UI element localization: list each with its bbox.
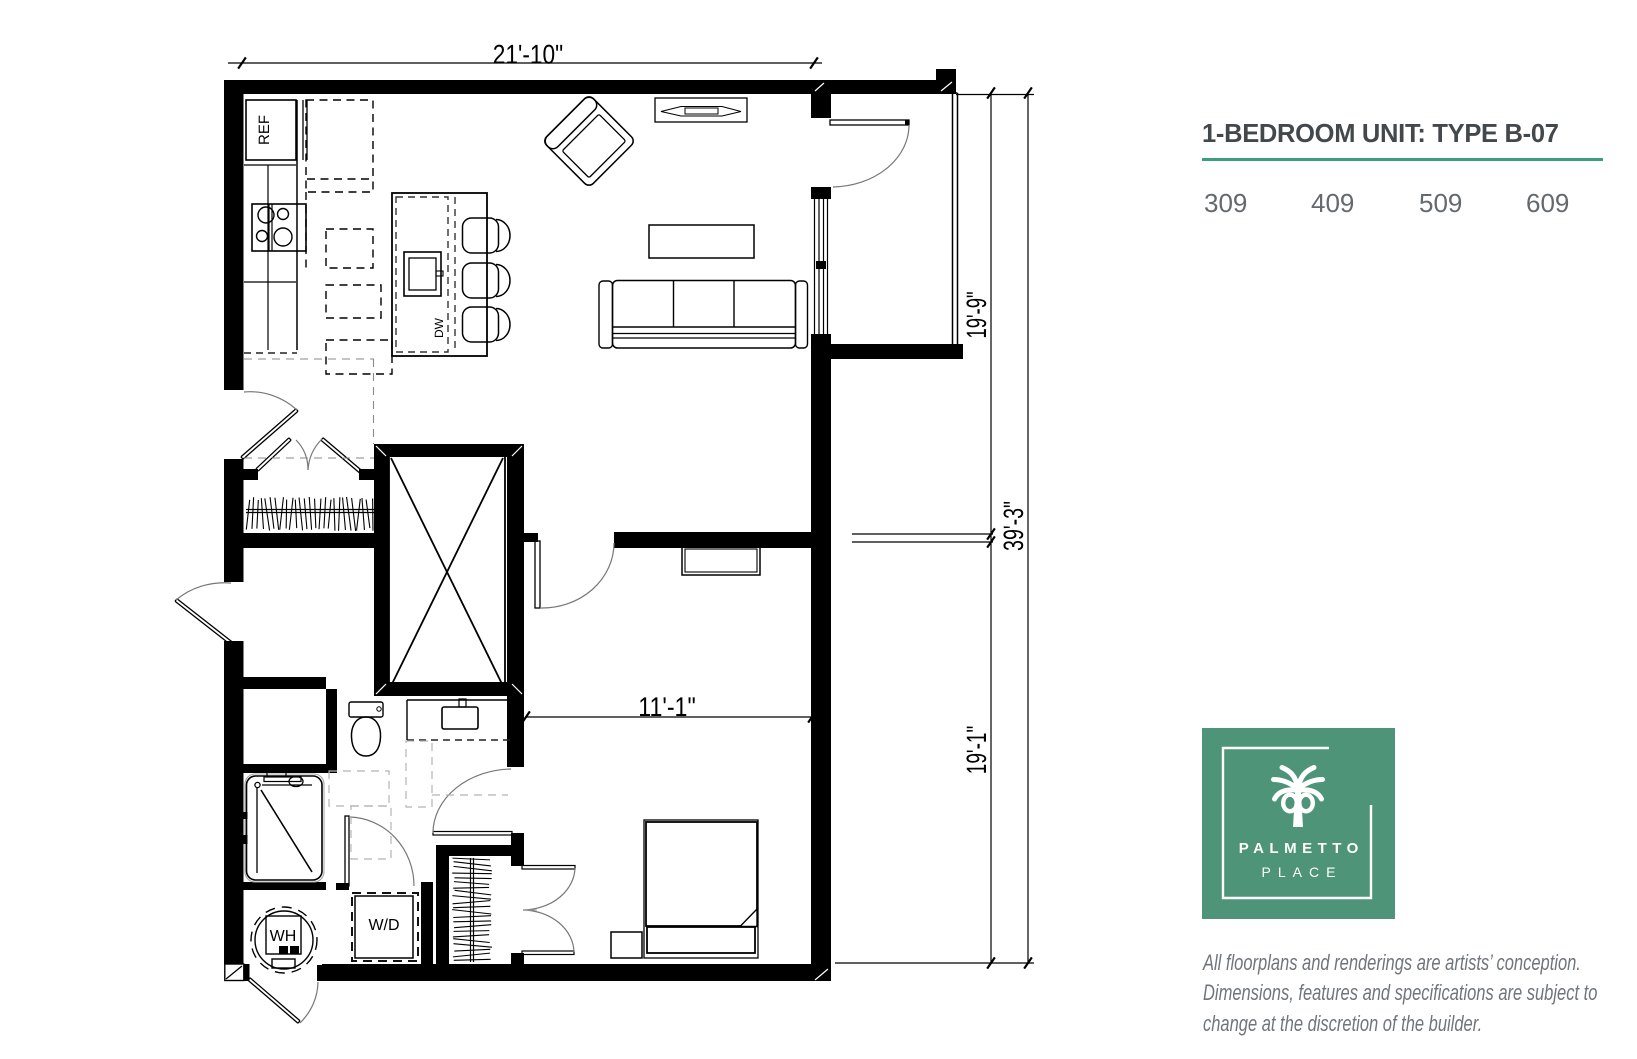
svg-text:39'-3": 39'-3" [998, 501, 1029, 551]
svg-text:WH: WH [270, 928, 297, 945]
svg-text:21'-10": 21'-10" [493, 40, 563, 70]
svg-text:19'-1": 19'-1" [961, 726, 992, 775]
svg-text:REF: REF [256, 115, 273, 145]
svg-text:11'-1": 11'-1" [638, 692, 695, 722]
svg-text:W/D: W/D [368, 917, 399, 934]
svg-text:19'-9": 19'-9" [961, 291, 992, 338]
svg-text:DW: DW [432, 317, 446, 338]
